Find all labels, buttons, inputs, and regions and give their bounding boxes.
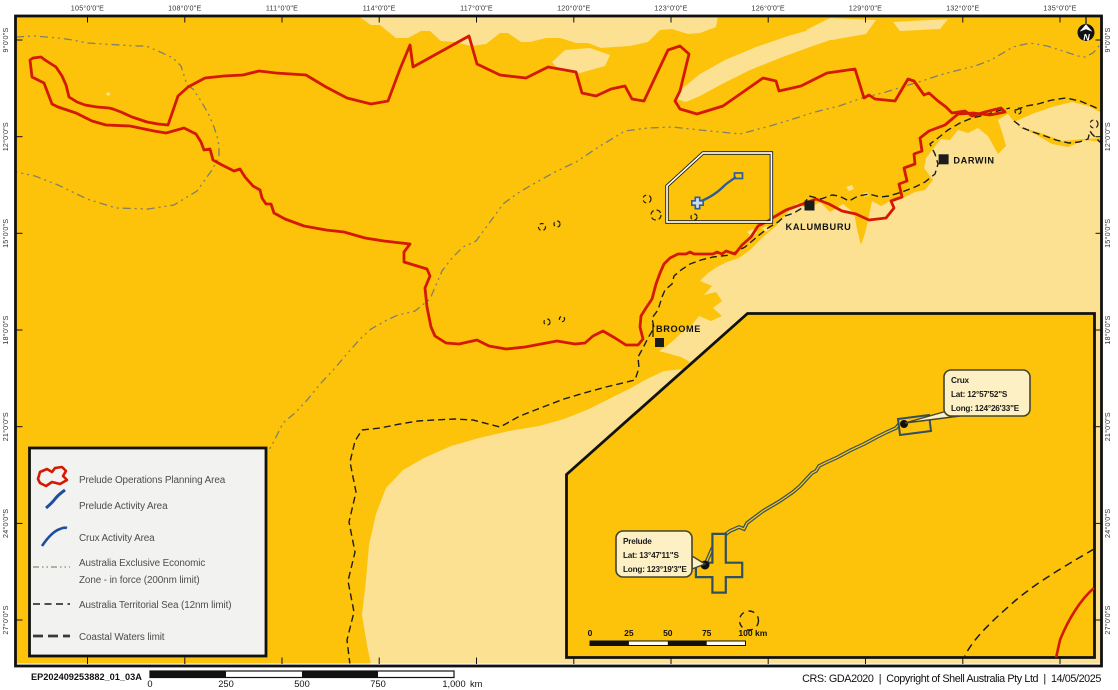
- svg-text:24°0'0"S: 24°0'0"S: [1, 509, 10, 538]
- svg-text:Coastal Waters limit: Coastal Waters limit: [79, 632, 165, 643]
- svg-text:Lat: 13°47'11"S: Lat: 13°47'11"S: [623, 551, 679, 560]
- svg-text:27°0'0"S: 27°0'0"S: [1103, 605, 1112, 634]
- svg-text:Prelude: Prelude: [623, 537, 652, 546]
- svg-text:KALUMBURU: KALUMBURU: [785, 222, 851, 232]
- svg-text:108°0'0"E: 108°0'0"E: [168, 4, 201, 13]
- svg-text:Long: 124°26'33"E: Long: 124°26'33"E: [951, 404, 1020, 413]
- svg-text:100: 100: [738, 628, 752, 638]
- svg-text:25: 25: [624, 628, 634, 638]
- svg-text:21°0'0"S: 21°0'0"S: [1103, 412, 1112, 441]
- svg-text:9°0'0"S: 9°0'0"S: [1, 28, 10, 53]
- svg-text:50: 50: [663, 628, 673, 638]
- svg-text:Australia Exclusive Economic: Australia Exclusive Economic: [79, 558, 205, 569]
- svg-text:1,000: 1,000: [442, 679, 465, 689]
- svg-text:Australia Territorial Sea (12n: Australia Territorial Sea (12nm limit): [79, 600, 231, 611]
- svg-text:75: 75: [702, 628, 712, 638]
- svg-text:km: km: [470, 679, 483, 689]
- svg-text:15°0'0"S: 15°0'0"S: [1103, 219, 1112, 248]
- svg-text:21°0'0"S: 21°0'0"S: [1, 412, 10, 441]
- svg-text:750: 750: [370, 679, 386, 689]
- svg-text:120°0'0"E: 120°0'0"E: [557, 4, 590, 13]
- svg-text:132°0'0"E: 132°0'0"E: [946, 4, 979, 13]
- svg-text:Crux Activity Area: Crux Activity Area: [79, 533, 155, 544]
- svg-text:CRS: GDA2020 | Copyright of: CRS: GDA2020 | Copyright of Shell Austra…: [802, 673, 1101, 685]
- svg-text:15°0'0"S: 15°0'0"S: [1, 219, 10, 248]
- svg-text:Prelude Operations Planning Ar: Prelude Operations Planning Area: [79, 475, 226, 486]
- svg-text:Long: 123°19'3"E: Long: 123°19'3"E: [623, 565, 687, 574]
- svg-text:129°0'0"E: 129°0'0"E: [849, 4, 882, 13]
- svg-text:18°0'0"S: 18°0'0"S: [1, 315, 10, 344]
- svg-text:Lat: 12°57'52"S: Lat: 12°57'52"S: [951, 390, 1008, 399]
- svg-text:105°0'0"E: 105°0'0"E: [71, 4, 104, 13]
- svg-text:Crux: Crux: [951, 376, 970, 385]
- svg-text:0: 0: [147, 679, 152, 689]
- svg-text:18°0'0"S: 18°0'0"S: [1103, 315, 1112, 344]
- svg-text:BROOME: BROOME: [656, 324, 701, 334]
- svg-text:117°0'0"E: 117°0'0"E: [460, 4, 493, 13]
- svg-text:km: km: [755, 628, 768, 638]
- svg-text:Zone - in force (200nm limit): Zone - in force (200nm limit): [79, 575, 200, 586]
- svg-text:123°0'0"E: 123°0'0"E: [654, 4, 687, 13]
- svg-text:12°0'0"S: 12°0'0"S: [1103, 122, 1112, 151]
- svg-text:114°0'0"E: 114°0'0"E: [363, 4, 396, 13]
- svg-text:9°0'0"S: 9°0'0"S: [1103, 28, 1112, 53]
- svg-text:126°0'0"E: 126°0'0"E: [752, 4, 785, 13]
- svg-text:N: N: [1083, 33, 1090, 43]
- svg-text:500: 500: [294, 679, 310, 689]
- svg-text:111°0'0"E: 111°0'0"E: [266, 4, 298, 13]
- svg-text:0: 0: [588, 628, 593, 638]
- svg-text:27°0'0"S: 27°0'0"S: [1, 605, 10, 634]
- svg-text:135°0'0"E: 135°0'0"E: [1043, 4, 1076, 13]
- svg-text:EP202409253882_01_03A: EP202409253882_01_03A: [31, 672, 142, 682]
- svg-text:Prelude Activity Area: Prelude Activity Area: [79, 501, 168, 512]
- svg-text:12°0'0"S: 12°0'0"S: [1, 122, 10, 151]
- svg-text:250: 250: [218, 679, 234, 689]
- svg-text:DARWIN: DARWIN: [953, 156, 994, 166]
- svg-text:24°0'0"S: 24°0'0"S: [1103, 509, 1112, 538]
